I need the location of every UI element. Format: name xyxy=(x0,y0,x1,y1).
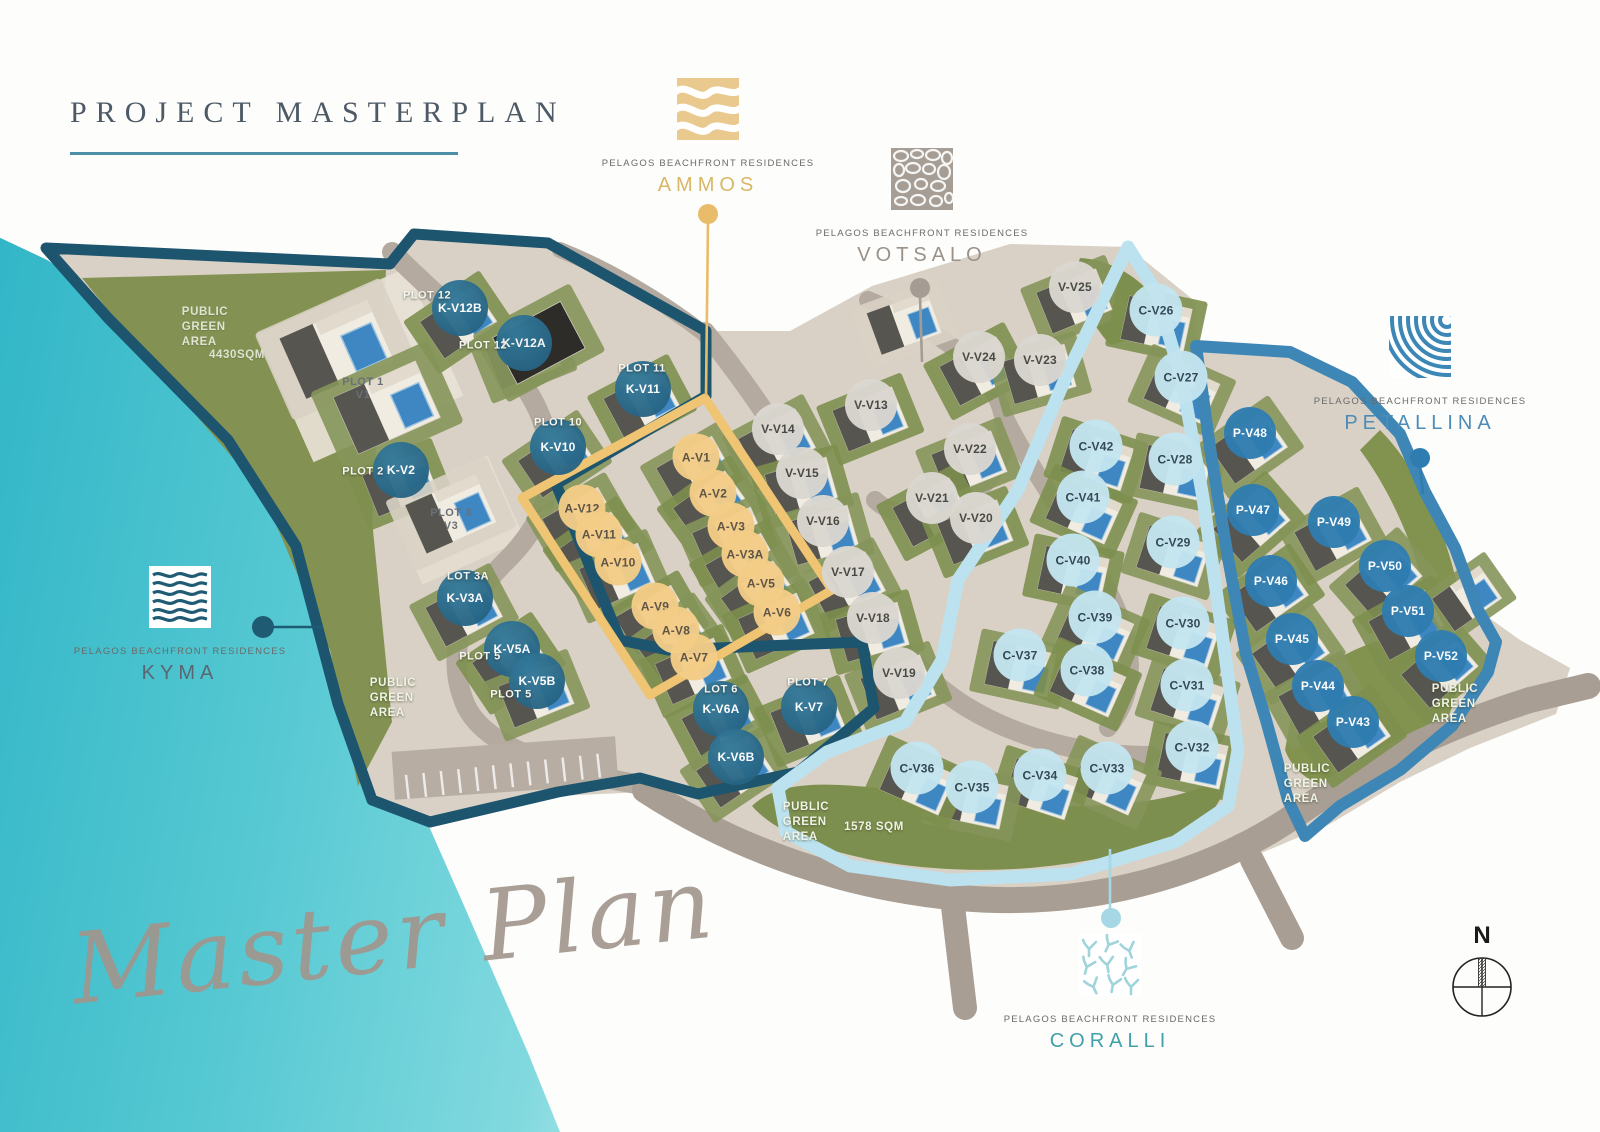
zone-callout-petallina: PELAGOS BEACHFRONT RESIDENCES PETALLINA xyxy=(1295,316,1545,435)
plot-label: PLOT 7 xyxy=(787,676,829,689)
zone-name-kyma: KYMA xyxy=(55,662,305,685)
brand-subtitle: PELAGOS BEACHFRONT RESIDENCES xyxy=(55,646,305,657)
header: PROJECT MASTERPLAN xyxy=(70,96,566,155)
plot-label: PLOT 12 xyxy=(459,339,507,352)
villa-marker[interactable]: C-V31 xyxy=(1161,659,1214,712)
villa-marker[interactable]: C-V29 xyxy=(1147,516,1200,569)
villa-marker[interactable]: P-V46 xyxy=(1245,555,1297,607)
villa-marker[interactable]: V-V23 xyxy=(1014,334,1066,386)
zone-name-petallina: PETALLINA xyxy=(1295,412,1545,435)
villa-marker[interactable]: C-V33 xyxy=(1081,742,1134,795)
zone-callout-votsalo: PELAGOS BEACHFRONT RESIDENCES VOTSALO xyxy=(797,148,1047,267)
coral-icon xyxy=(1079,934,1141,1001)
villa-marker[interactable]: V-V25 xyxy=(1049,261,1101,313)
public-green-area-label: PUBLICGREENAREA xyxy=(1432,682,1478,727)
compass: N xyxy=(1449,922,1515,952)
plot-label: PLOT 3V3 xyxy=(430,507,472,533)
pebbles-icon xyxy=(891,148,953,215)
zone-callout-coralli: PELAGOS BEACHFRONT RESIDENCES CORALLI xyxy=(985,934,1235,1053)
plot-label: PLOT 2 xyxy=(342,465,384,478)
public-green-area-label: 1578 SQM xyxy=(844,820,904,835)
villa-marker[interactable]: P-V51 xyxy=(1382,585,1434,637)
villa-marker[interactable]: V-V24 xyxy=(953,331,1005,383)
villa-marker[interactable]: P-V50 xyxy=(1359,540,1411,592)
villa-marker[interactable]: C-V38 xyxy=(1061,644,1114,697)
brand-subtitle: PELAGOS BEACHFRONT RESIDENCES xyxy=(797,228,1047,239)
public-green-area-label: PUBLICGREENAREA xyxy=(370,676,416,721)
villa-marker[interactable]: C-V34 xyxy=(1014,749,1067,802)
public-green-area-label: PUBLICGREENAREA xyxy=(182,305,228,350)
villa-marker[interactable]: V-V16 xyxy=(797,495,849,547)
villa-marker[interactable]: C-V30 xyxy=(1157,597,1210,650)
villa-marker[interactable]: A-V6 xyxy=(754,589,801,636)
page-title: PROJECT MASTERPLAN xyxy=(70,96,566,130)
title-underline xyxy=(70,152,458,155)
villa-marker[interactable]: V-V17 xyxy=(822,546,874,598)
brand-subtitle: PELAGOS BEACHFRONT RESIDENCES xyxy=(583,158,833,169)
villa-marker[interactable]: P-V43 xyxy=(1327,696,1379,748)
villa-marker[interactable]: V-V20 xyxy=(950,492,1002,544)
public-green-area-label: PUBLICGREENAREA xyxy=(783,800,829,845)
villa-marker[interactable]: C-V41 xyxy=(1057,471,1110,524)
villa-marker[interactable]: P-V48 xyxy=(1224,407,1276,459)
public-green-area-label: PUBLICGREENAREA xyxy=(1284,762,1330,807)
villa-marker[interactable]: C-V27 xyxy=(1155,351,1208,404)
plot-label: PLOT 5 xyxy=(490,688,532,701)
villa-marker[interactable]: C-V26 xyxy=(1130,284,1183,337)
plot-label: PLOT 12 xyxy=(403,289,451,302)
sea-waves-icon xyxy=(149,566,211,633)
villa-marker[interactable]: P-V52 xyxy=(1415,630,1467,682)
villa-marker[interactable]: A-V7 xyxy=(671,634,718,681)
villa-marker[interactable]: C-V28 xyxy=(1149,433,1202,486)
public-green-area-label: 4430SQM xyxy=(209,348,265,363)
sand-waves-icon xyxy=(677,78,739,145)
zone-callout-kyma: PELAGOS BEACHFRONT RESIDENCES KYMA xyxy=(55,566,305,685)
villa-marker[interactable]: P-V47 xyxy=(1227,484,1279,536)
plot-label: PLOT 1V1 xyxy=(342,376,384,402)
brand-subtitle: PELAGOS BEACHFRONT RESIDENCES xyxy=(985,1014,1235,1025)
plot-label: LOT 6 xyxy=(704,683,738,696)
villa-marker[interactable]: A-V10 xyxy=(595,539,642,586)
zone-name-coralli: CORALLI xyxy=(985,1030,1235,1053)
villa-marker[interactable]: C-V39 xyxy=(1069,591,1122,644)
villa-marker[interactable]: C-V37 xyxy=(994,629,1047,682)
villa-marker[interactable]: V-V19 xyxy=(873,647,925,699)
villa-marker[interactable]: C-V35 xyxy=(946,761,999,814)
villa-marker[interactable]: V-V15 xyxy=(776,447,828,499)
plot-label: PLOT 5 xyxy=(459,650,501,663)
villa-marker[interactable]: V-V13 xyxy=(845,379,897,431)
villa-marker[interactable]: P-V45 xyxy=(1266,613,1318,665)
villa-marker[interactable]: K-V6B xyxy=(708,729,764,785)
plot-label: LOT 3A xyxy=(447,570,489,583)
zone-name-votsalo: VOTSALO xyxy=(797,244,1047,267)
villa-marker[interactable]: C-V42 xyxy=(1070,420,1123,473)
villa-marker[interactable]: V-V22 xyxy=(944,423,996,475)
plot-label: PLOT 10 xyxy=(534,416,582,429)
plot-label: PLOT 11 xyxy=(618,362,666,375)
compass-north-label: N xyxy=(1449,922,1515,950)
villa-marker[interactable]: K-V12B xyxy=(432,280,488,336)
brand-subtitle: PELAGOS BEACHFRONT RESIDENCES xyxy=(1295,396,1545,407)
villa-marker[interactable]: P-V49 xyxy=(1308,496,1360,548)
shell-fan-icon xyxy=(1389,316,1451,383)
villa-marker[interactable]: C-V32 xyxy=(1166,721,1219,774)
zone-name-ammos: AMMOS xyxy=(583,174,833,197)
villa-marker[interactable]: C-V36 xyxy=(891,742,944,795)
villa-marker[interactable]: V-V18 xyxy=(847,592,899,644)
zone-callout-ammos: PELAGOS BEACHFRONT RESIDENCES AMMOS xyxy=(583,78,833,197)
villa-marker[interactable]: C-V40 xyxy=(1047,534,1100,587)
